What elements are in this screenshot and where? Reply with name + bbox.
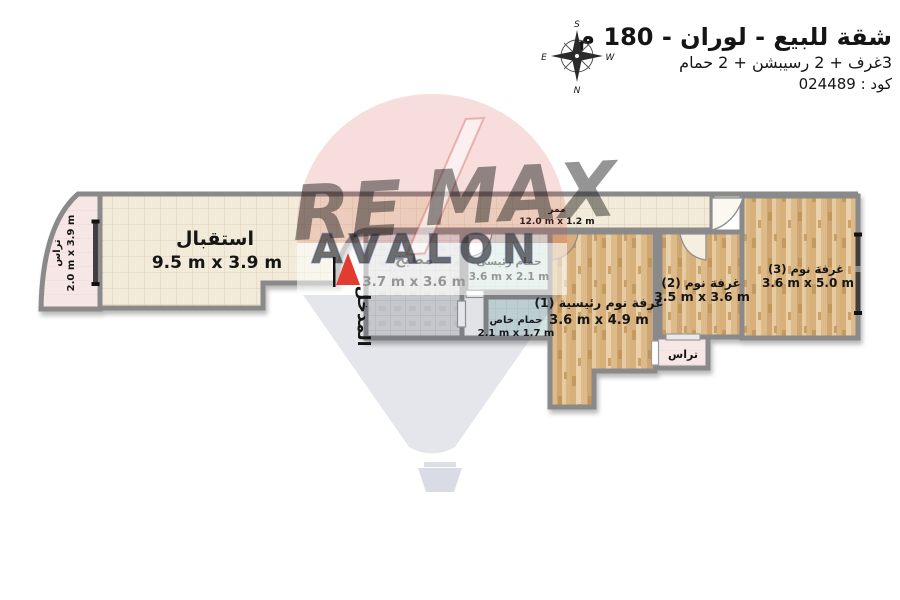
page: شقة للبيع - لوران - 180 م 3غرف + 2 رسيبش…: [0, 0, 900, 600]
door-arc-bedroom-3: [712, 198, 743, 230]
label-bedroom-3-name: غرفة نوم (3): [768, 262, 844, 277]
label-reception-dims: 9.5 m x 3.9 m: [152, 253, 282, 273]
window-bedroom-3-a: [856, 236, 861, 266]
balloon-bottom: [303, 295, 561, 454]
label-terrace-right-name: تراس: [668, 348, 698, 361]
entrance-tick: [333, 257, 336, 287]
label-bedroom-1-dims: 3.6 m x 4.9 m: [549, 313, 649, 328]
label-bedroom-3-dims: 3.6 m x 5.0 m: [762, 276, 854, 290]
label-terrace-left-dims: 2.0 m x 3.9 m: [66, 215, 77, 292]
compass-bottom: N: [574, 86, 581, 96]
window-terrace-right: [666, 334, 700, 340]
door-terrace-right: [652, 341, 659, 365]
compass-icon: S N E W: [541, 20, 615, 96]
compass-top: S: [574, 20, 580, 30]
compass-left: E: [541, 53, 547, 63]
floor-plan-svg: استقبال 9.5 m x 3.9 m تراس 2.0 m x 3.9 m…: [0, 0, 900, 600]
balloon-basket-rim: [424, 462, 456, 467]
balloon-basket: [418, 468, 462, 492]
compass-right: W: [606, 53, 616, 63]
window-bedroom-3-b: [856, 272, 861, 312]
window-reception: [93, 223, 98, 283]
label-reception-name: استقبال: [176, 228, 254, 250]
label-terrace-left-name: تراس: [52, 239, 63, 266]
label-bedroom-2-dims: 3.5 m x 3.6 m: [654, 289, 750, 304]
entrance-label: المدخل: [353, 286, 373, 347]
